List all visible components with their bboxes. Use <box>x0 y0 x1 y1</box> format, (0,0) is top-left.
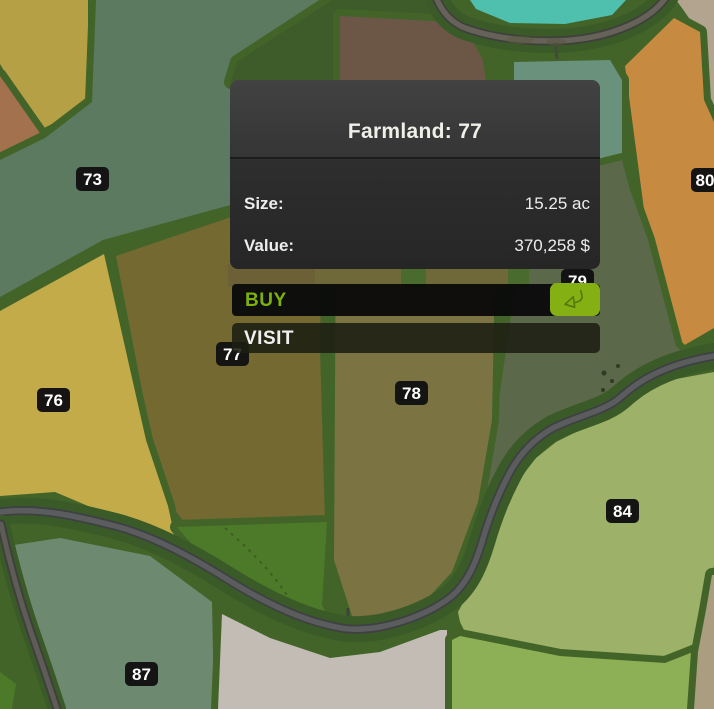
svg-text:78: 78 <box>402 384 421 403</box>
svg-text:73: 73 <box>83 170 102 189</box>
svg-text:76: 76 <box>44 391 63 410</box>
svg-text:80: 80 <box>696 171 714 190</box>
svg-text:87: 87 <box>132 665 151 684</box>
svg-text:84: 84 <box>613 502 632 521</box>
